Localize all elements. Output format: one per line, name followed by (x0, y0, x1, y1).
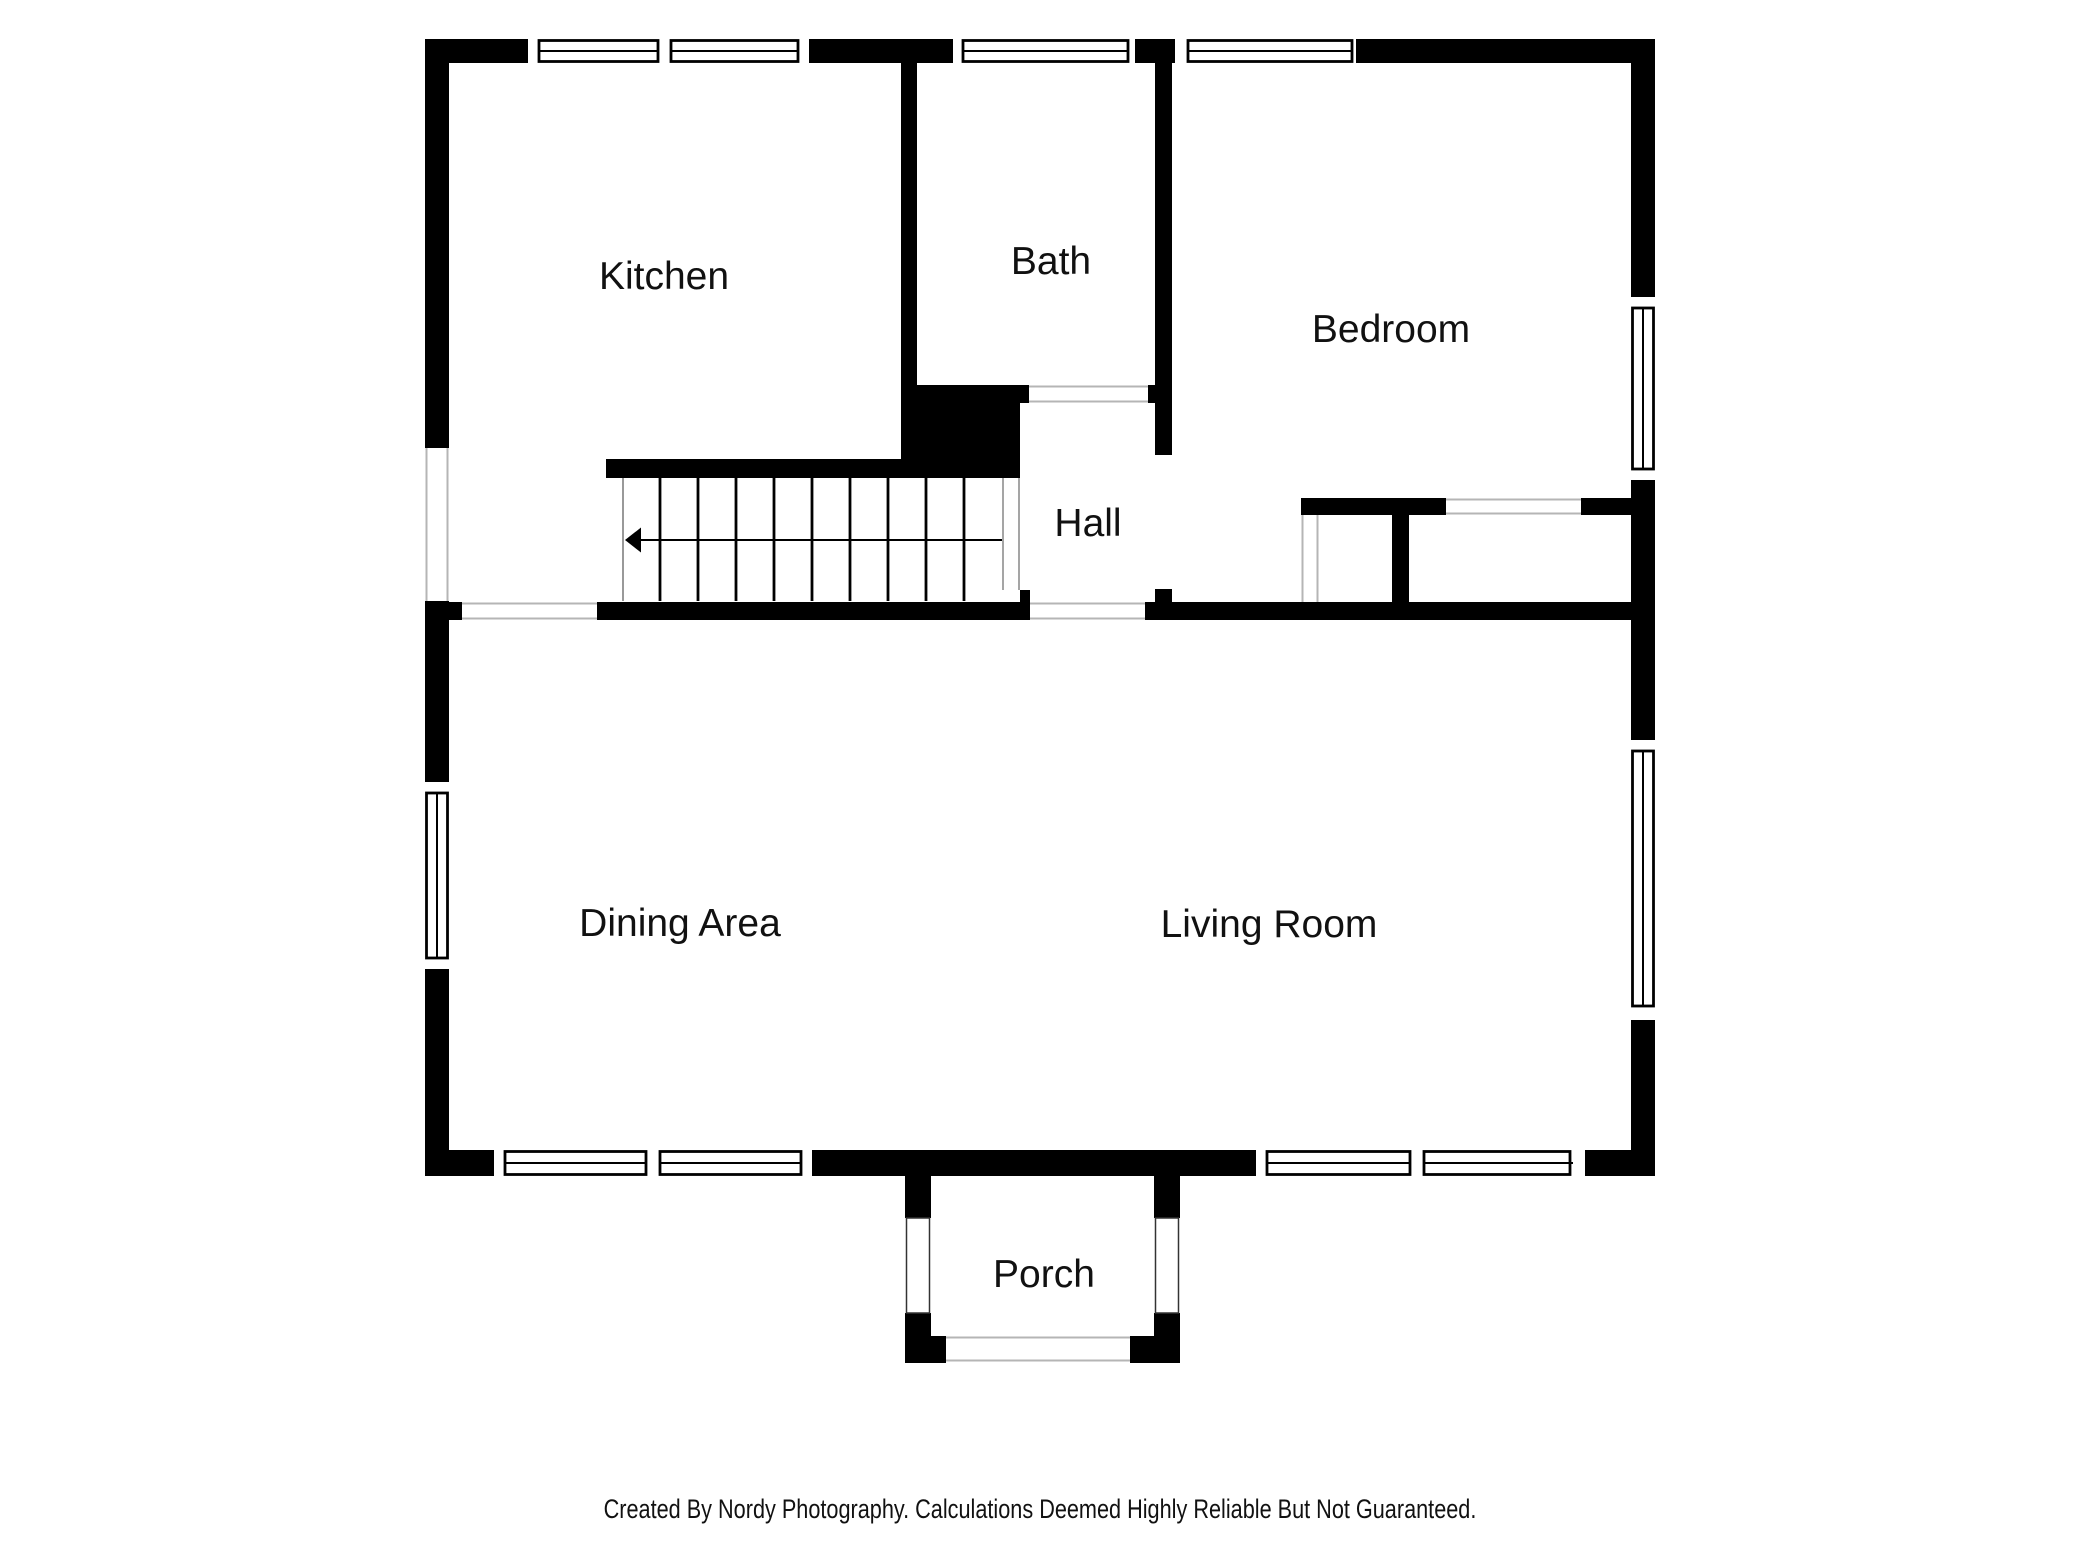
svg-text:Bedroom: Bedroom (1312, 308, 1470, 351)
svg-text:Dining Area: Dining Area (579, 902, 781, 945)
svg-text:Porch: Porch (993, 1253, 1095, 1296)
svg-text:Living Room: Living Room (1161, 903, 1378, 946)
svg-text:Hall: Hall (1054, 502, 1121, 545)
svg-text:Created By Nordy Photography.: Created By Nordy Photography. Calculatio… (604, 1495, 1477, 1525)
svg-text:Kitchen: Kitchen (599, 255, 729, 298)
svg-text:Bath: Bath (1011, 240, 1091, 283)
